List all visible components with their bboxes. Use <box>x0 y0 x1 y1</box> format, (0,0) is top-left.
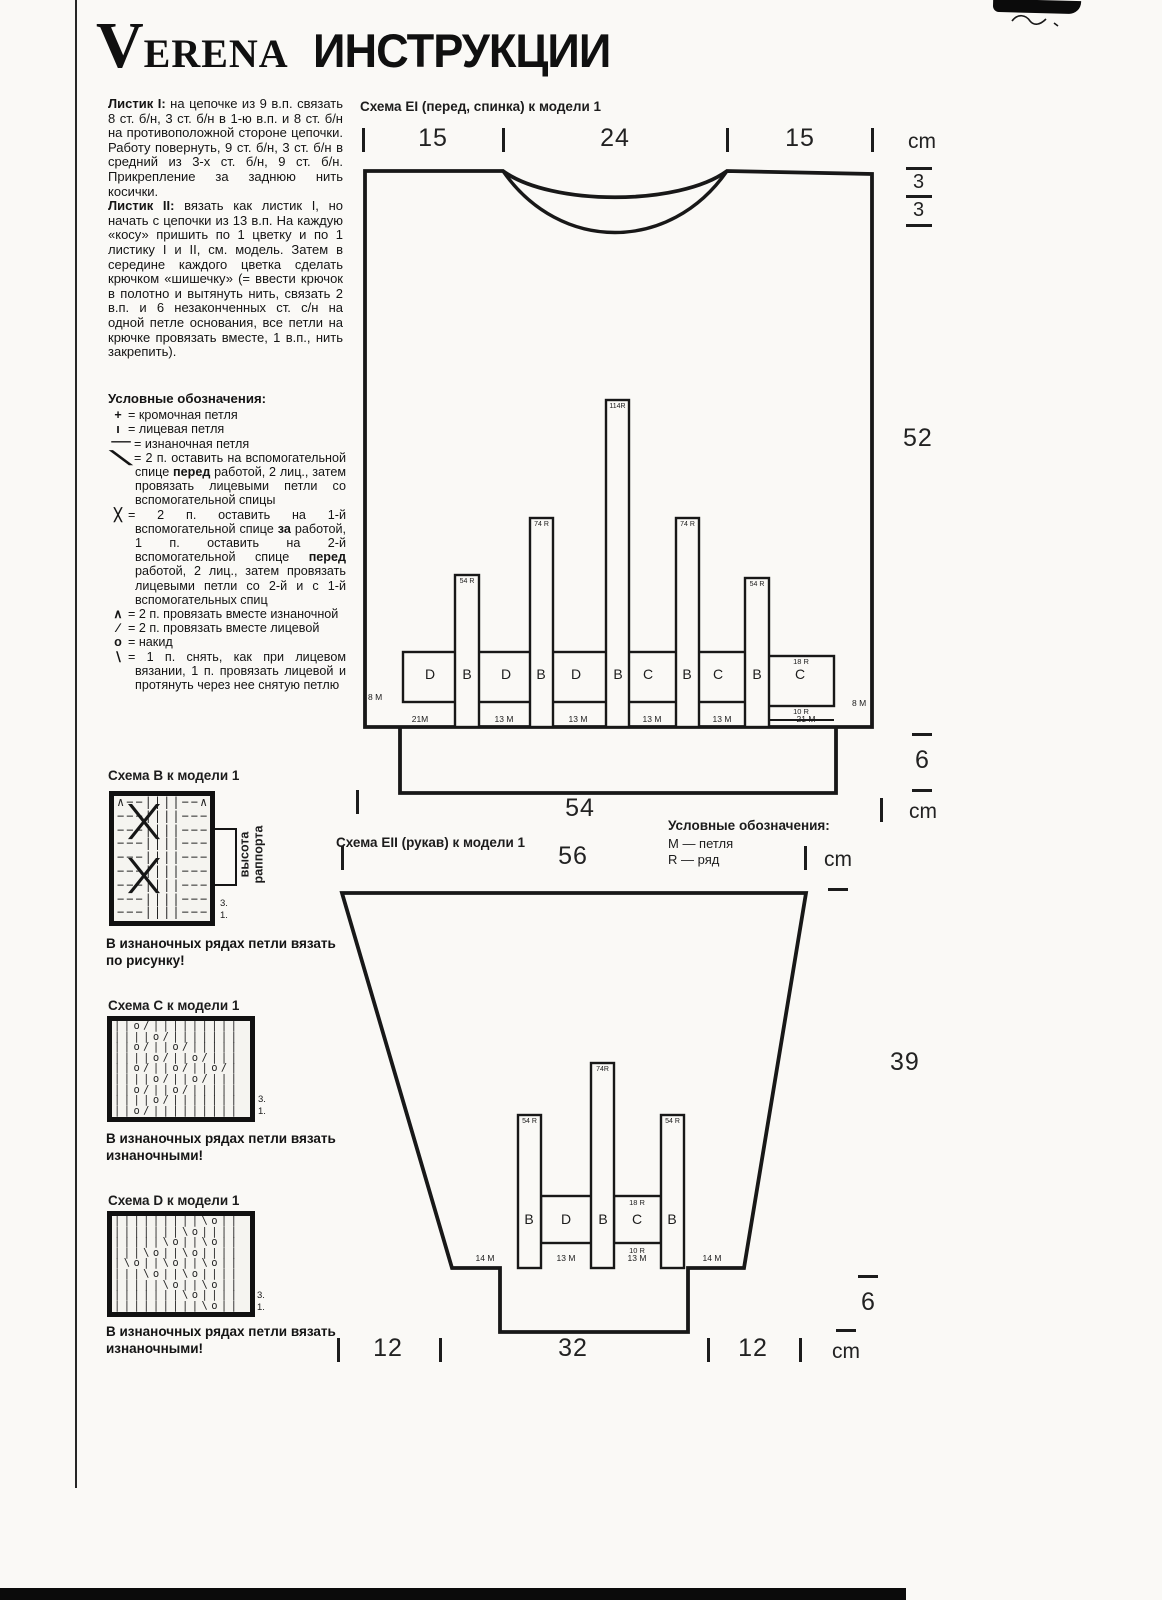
stitch-count-label: 21M <box>404 714 436 724</box>
band-letter: C <box>636 666 660 682</box>
stitch-count-label: 13 M <box>621 1253 653 1263</box>
band-letter: B <box>675 666 699 682</box>
dimension-tick <box>356 790 359 814</box>
ei-neck-depth-back: 3 <box>913 171 924 194</box>
dimension-line <box>906 224 932 227</box>
cable-bar-rows-label: 114R <box>606 403 629 410</box>
eii-unit-top: cm <box>824 848 852 872</box>
cable-bar-rows-label: 54 R <box>661 1118 684 1125</box>
eii-width-top: 56 <box>341 842 805 871</box>
band-letter: B <box>517 1211 541 1227</box>
band-rows-top-label: 18 R <box>786 657 816 666</box>
eii-width-bottom-center: 32 <box>439 1334 707 1363</box>
ei-width-bottom: 54 <box>480 794 680 823</box>
eii-height-body: 39 <box>890 1048 920 1077</box>
edge-stitches-left: 8 M <box>368 692 382 702</box>
cable-bar-rows-label: 74R <box>591 1066 614 1073</box>
band-letter: B <box>455 666 479 682</box>
stitch-count-label: 13 M <box>550 1253 582 1263</box>
dimension-line <box>858 1275 878 1278</box>
dimension-line <box>906 195 932 198</box>
band-letter: B <box>591 1211 615 1227</box>
stitch-count-label: 13 M <box>562 714 594 724</box>
band-letter: C <box>625 1211 649 1227</box>
eii-unit-bottom: cm <box>832 1340 860 1364</box>
stitch-count-label: 13 M <box>488 714 520 724</box>
band-letter: D <box>554 1211 578 1227</box>
eii-height-cuff: 6 <box>861 1288 876 1317</box>
cable-bar-rows-label: 74 R <box>676 521 699 528</box>
dimension-tick <box>880 798 883 822</box>
eii-width-bottom-right: 12 <box>707 1334 799 1363</box>
cable-bar-rows-label: 54 R <box>518 1118 541 1125</box>
dimension-line <box>912 789 932 792</box>
dimension-line <box>912 733 932 736</box>
ei-height-body: 52 <box>903 424 933 453</box>
stitch-count-label: 21 M <box>790 714 822 724</box>
band-rows-top-label: 18 R <box>622 1198 652 1207</box>
band-letter: C <box>788 666 812 682</box>
cable-bar-rows-label: 74 R <box>530 521 553 528</box>
dimension-line <box>906 167 932 170</box>
stitch-count-label: 13 M <box>706 714 738 724</box>
band-letter: D <box>564 666 588 682</box>
ei-unit-top: cm <box>908 130 936 154</box>
band-letter: D <box>494 666 518 682</box>
stitch-count-label: 14 M <box>696 1253 728 1263</box>
dimension-tick <box>799 1338 802 1362</box>
cable-bar-rows-label: 54 R <box>745 581 769 588</box>
ei-title: Схема EI (перед, спинка) к модели 1 <box>360 99 601 114</box>
ei-width-shoulder-left: 15 <box>362 124 504 153</box>
band-letter: B <box>606 666 630 682</box>
ei-unit-bottom: cm <box>909 800 937 824</box>
band-letter: C <box>706 666 730 682</box>
band-letter: B <box>745 666 769 682</box>
eii-width-bottom-left: 12 <box>337 1334 439 1363</box>
ei-width-shoulder-right: 15 <box>726 124 874 153</box>
dimension-line <box>836 1329 856 1332</box>
stitch-count-label: 13 M <box>636 714 668 724</box>
band-letter: D <box>418 666 442 682</box>
band-letter: B <box>529 666 553 682</box>
magazine-page: VERENA ИНСТРУКЦИИ Листик I: на цепочке и… <box>0 0 1162 1600</box>
edge-stitches-right: 8 M <box>852 698 866 708</box>
ei-height-ribbing: 6 <box>915 746 930 775</box>
ei-neck-depth-front: 3 <box>913 199 924 222</box>
dimension-line <box>828 888 848 891</box>
legend2-header: Условные обозначения: <box>668 818 830 833</box>
ei-width-neck: 24 <box>502 124 728 153</box>
band-letter: B <box>660 1211 684 1227</box>
cable-bar-rows-label: 54 R <box>455 578 479 585</box>
stitch-count-label: 14 M <box>469 1253 501 1263</box>
